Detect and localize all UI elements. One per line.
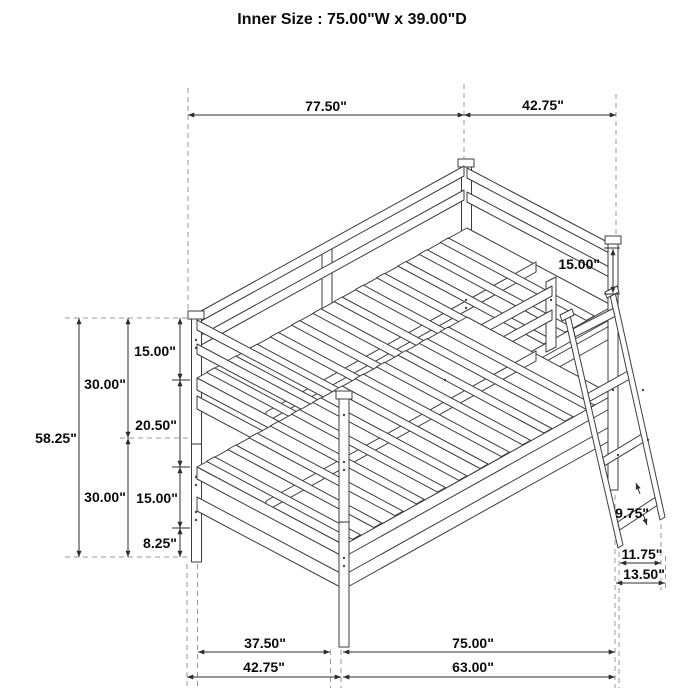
bunk-bed-drawing xyxy=(188,159,665,647)
dim-label-ladder-feet-outer: 13.50" xyxy=(623,566,665,582)
dim-label-top-depth: 42.75" xyxy=(522,97,564,113)
dim-label-ladder-feet-inner: 11.75" xyxy=(622,546,663,562)
dim-label-lower-section: 30.00" xyxy=(84,489,126,505)
dim-label-bottom-lower-width: 63.00" xyxy=(452,659,494,675)
diagram-title: Inner Size : 75.00"W x 39.00"D xyxy=(237,11,467,28)
dim-label-top-width: 77.50" xyxy=(305,98,347,114)
dim-label-lower-rail: 15.00" xyxy=(136,490,178,506)
dim-label-guard-height: 15.00" xyxy=(558,256,600,272)
dim-label-clearance: 20.50" xyxy=(135,417,177,433)
dim-label-under-clearance: 8.25" xyxy=(143,535,177,551)
bunk-bed-dimension-diagram: Inner Size : 75.00"W x 39.00"D 77.50" 42… xyxy=(0,0,700,700)
dim-label-rung-spacing: 9.75" xyxy=(615,505,649,521)
dim-label-bottom-outer-depth: 42.75" xyxy=(243,659,285,675)
dim-label-bottom-inner-width: 75.00" xyxy=(452,635,494,651)
dim-label-total-height: 58.25" xyxy=(35,430,77,446)
dim-label-upper-section: 30.00" xyxy=(84,376,126,392)
dim-label-bottom-inner-depth: 37.50" xyxy=(244,635,286,651)
dim-label-upper-rail: 15.00" xyxy=(134,343,176,359)
dim-arrow-rung-spacing-up xyxy=(636,483,640,494)
